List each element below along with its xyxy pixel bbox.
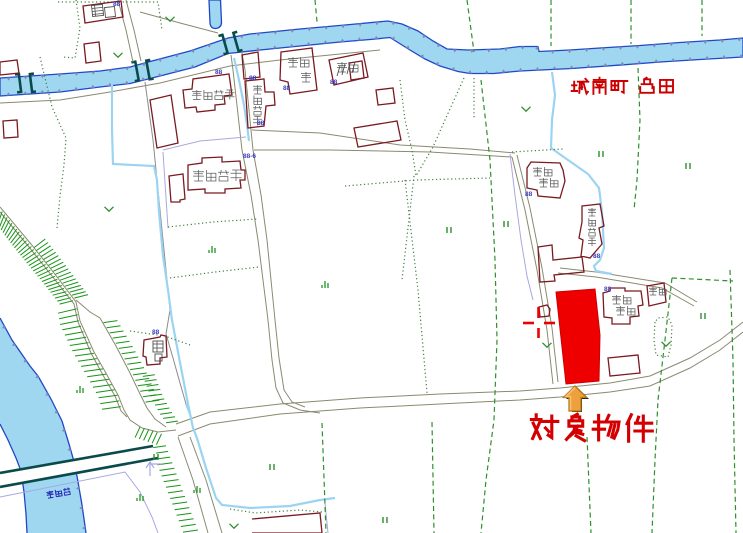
svg-text:88: 88	[257, 120, 265, 127]
svg-text:88: 88	[330, 79, 338, 86]
svg-text:88-6: 88-6	[243, 153, 256, 160]
svg-text:88: 88	[113, 1, 121, 8]
svg-text:88: 88	[215, 69, 223, 76]
svg-text:88: 88	[249, 75, 257, 82]
svg-text:88: 88	[593, 253, 601, 260]
svg-text:88: 88	[152, 329, 160, 336]
svg-text:88: 88	[525, 191, 533, 198]
svg-text:88: 88	[604, 286, 612, 293]
svg-text:88: 88	[283, 85, 291, 92]
